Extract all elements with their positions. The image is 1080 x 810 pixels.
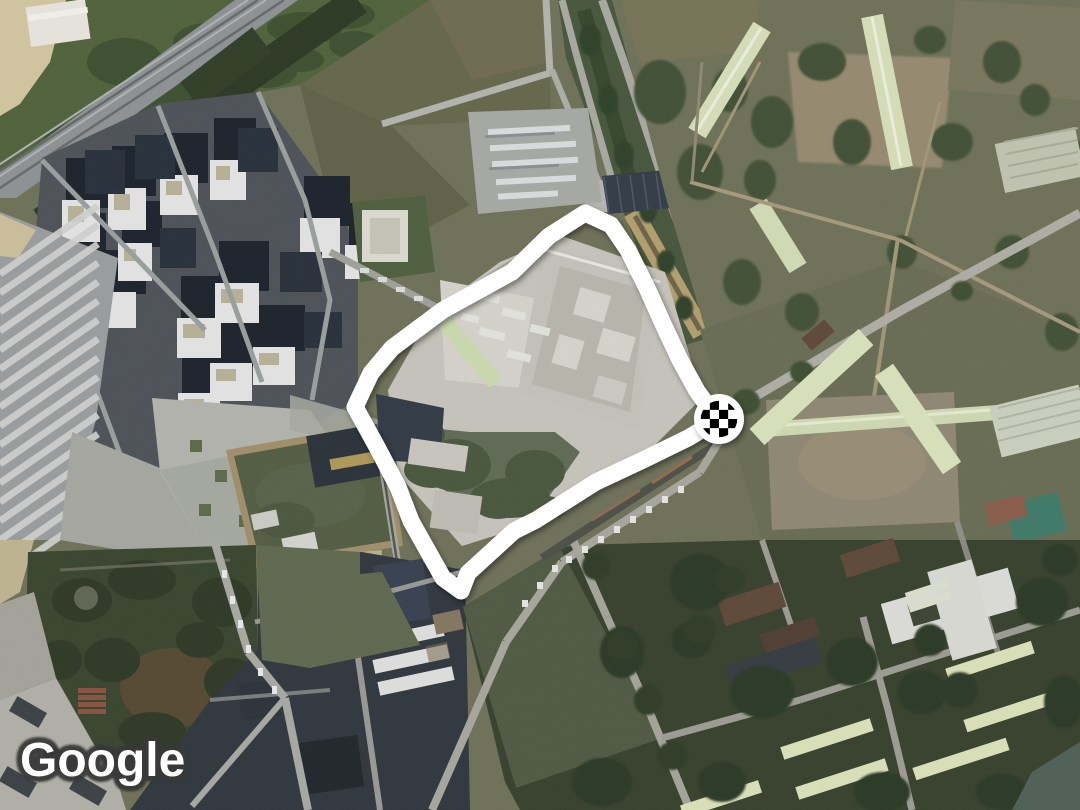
svg-text:Google: Google — [20, 734, 185, 787]
